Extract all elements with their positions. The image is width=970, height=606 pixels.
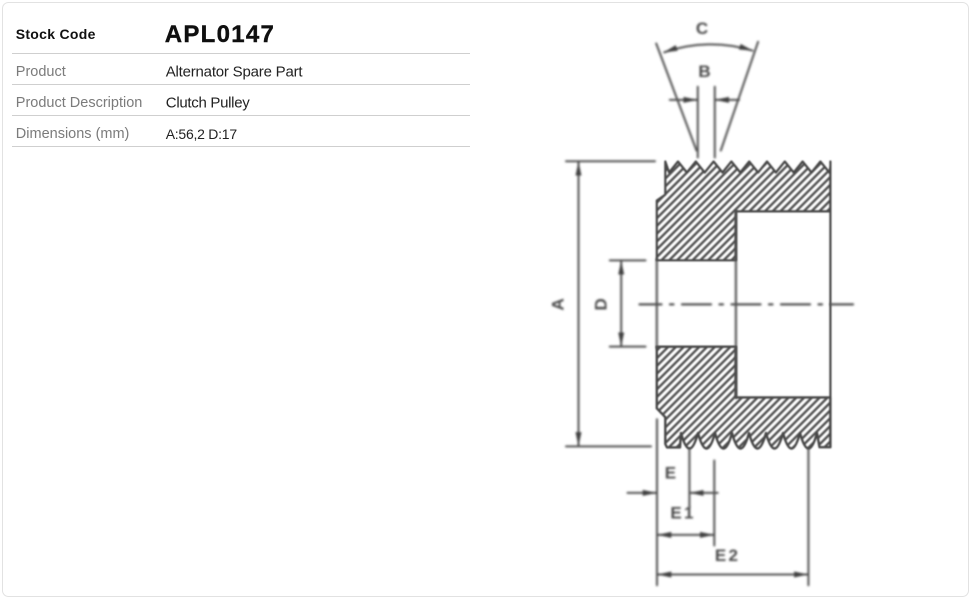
svg-text:C: C xyxy=(696,19,708,38)
svg-text:E2: E2 xyxy=(715,546,740,565)
svg-text:E1: E1 xyxy=(670,504,695,523)
svg-text:D: D xyxy=(592,298,611,310)
svg-text:E: E xyxy=(665,463,676,482)
svg-text:B: B xyxy=(698,62,710,81)
svg-text:A: A xyxy=(549,298,568,310)
